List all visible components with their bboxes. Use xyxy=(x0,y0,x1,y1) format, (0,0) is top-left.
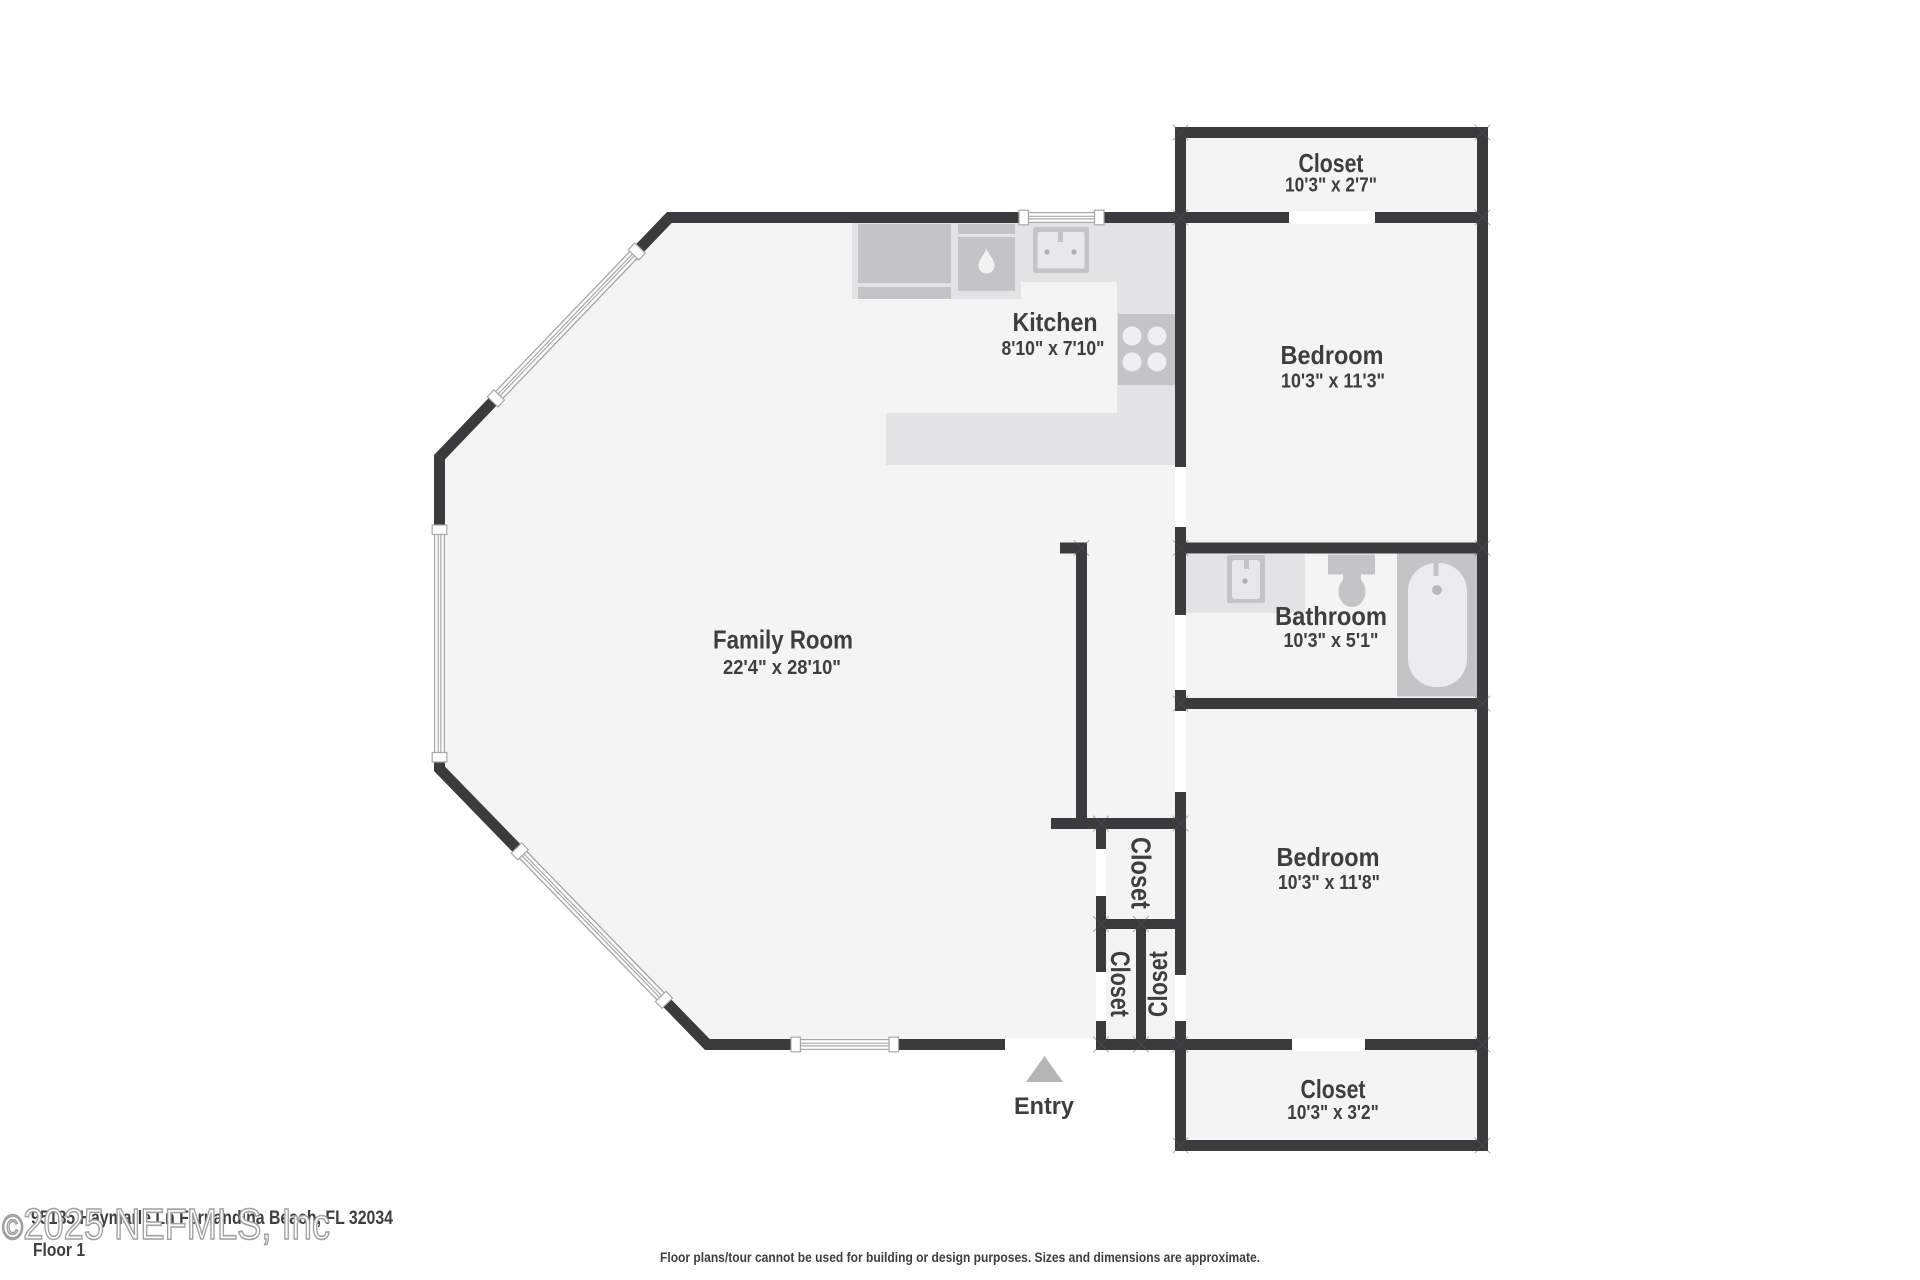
svg-text:Family Room: Family Room xyxy=(713,625,853,655)
svg-text:Entry: Entry xyxy=(1014,1093,1075,1120)
svg-text:10'3" x 11'8": 10'3" x 11'8" xyxy=(1278,871,1380,894)
svg-text:22'4" x 28'10": 22'4" x 28'10" xyxy=(723,656,841,679)
svg-text:Bedroom: Bedroom xyxy=(1277,842,1380,872)
svg-text:Closet: Closet xyxy=(1143,951,1173,1017)
svg-text:Closet: Closet xyxy=(1126,837,1157,909)
svg-text:Floor 1: Floor 1 xyxy=(33,1239,85,1260)
svg-text:10'3" x 5'1": 10'3" x 5'1" xyxy=(1284,629,1379,652)
svg-text:8'10" x 7'10": 8'10" x 7'10" xyxy=(1002,337,1105,360)
svg-text:Kitchen: Kitchen xyxy=(1013,307,1098,337)
svg-text:10'3" x 11'3": 10'3" x 11'3" xyxy=(1281,370,1385,393)
svg-text:Floor plans/tour cannot be use: Floor plans/tour cannot be used for buil… xyxy=(660,1250,1260,1265)
svg-text:10'3" x 2'7": 10'3" x 2'7" xyxy=(1285,174,1377,197)
svg-text:Bathroom: Bathroom xyxy=(1275,601,1387,631)
svg-text:10'3" x 3'2": 10'3" x 3'2" xyxy=(1287,1101,1379,1124)
svg-text:Closet: Closet xyxy=(1301,1074,1366,1104)
svg-text:Bedroom: Bedroom xyxy=(1281,340,1384,370)
svg-text:Closet: Closet xyxy=(1105,951,1135,1017)
